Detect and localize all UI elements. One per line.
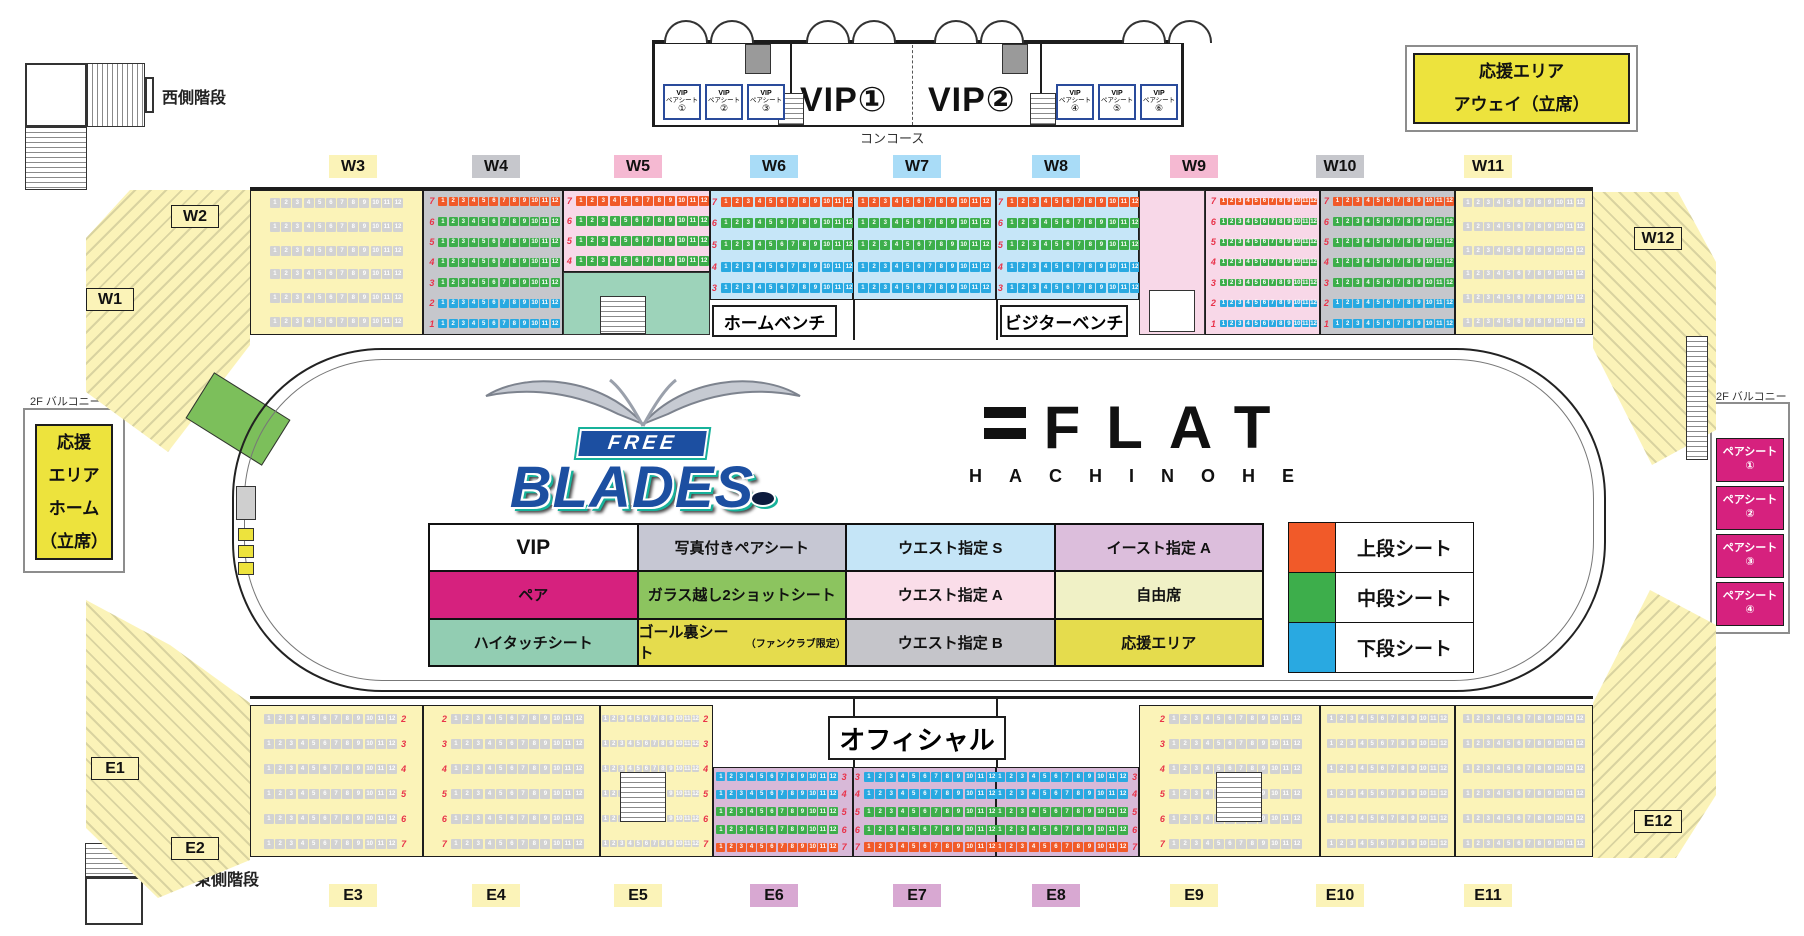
seat-block-e8: 1234567891011123123456789101112412345678… <box>996 767 1139 857</box>
door-arc-icon <box>806 20 850 43</box>
seat: 8 <box>659 740 666 747</box>
seat: 7 <box>1062 842 1072 852</box>
row-number: 3 <box>1158 739 1166 749</box>
seat: 4 <box>1029 772 1039 782</box>
seat: 9 <box>359 293 369 303</box>
seat: 4 <box>1203 839 1213 849</box>
row-number: 6 <box>1209 217 1217 227</box>
seat: 9 <box>810 240 820 250</box>
seat: 8 <box>788 807 797 816</box>
home-area-line1: 応援 <box>57 426 91 459</box>
seat-row: 3123456789101112 <box>1206 278 1319 288</box>
seat: 3 <box>880 262 890 272</box>
seat: 5 <box>1368 714 1377 723</box>
seat: 9 <box>520 217 529 226</box>
seat: 4 <box>627 765 634 772</box>
seat: 10 <box>1425 278 1434 287</box>
seat: 10 <box>1294 300 1301 307</box>
seat: 2 <box>449 217 458 226</box>
seat: 1 <box>1327 739 1336 748</box>
seat: 6 <box>489 278 498 287</box>
seat: 10 <box>822 197 832 207</box>
seat: 1 <box>1333 217 1342 226</box>
seat: 9 <box>359 198 369 208</box>
seat: 4 <box>747 843 756 852</box>
seat: 2 <box>587 236 597 246</box>
seat: 1 <box>270 246 280 256</box>
legend-cell-label: イースト指定 A <box>1107 537 1211 558</box>
seat: 7 <box>1394 217 1403 226</box>
seat: 4 <box>485 839 495 849</box>
row-number: 2 <box>702 714 710 724</box>
row-number: 2 <box>400 714 408 724</box>
seat: 9 <box>353 739 363 749</box>
seat-row: 1234567891011125 <box>997 807 1138 817</box>
seat: 4 <box>898 772 908 782</box>
seat: 11 <box>833 218 843 228</box>
seat: 3 <box>737 772 746 781</box>
seat: 2 <box>1228 279 1235 286</box>
seat: 2 <box>1474 739 1483 748</box>
seat: 3 <box>886 825 896 835</box>
seat: 10 <box>1419 789 1428 798</box>
seat: 3 <box>1191 714 1201 724</box>
seat: 7 <box>778 772 787 781</box>
door-arc-icon <box>852 20 896 43</box>
vip-pair-seat-box-1: VIP ペアシート ① <box>663 84 701 120</box>
seat-row: 3123456789101112 <box>854 772 995 782</box>
seat-row: 123456789101112 <box>854 218 995 228</box>
seat: 7 <box>1074 240 1084 250</box>
seat: 10 <box>1294 259 1301 266</box>
seat: 2 <box>875 842 885 852</box>
seat: 10 <box>1096 807 1106 817</box>
seat: 5 <box>479 217 488 226</box>
seat: 7 <box>651 840 658 847</box>
seat: 6 <box>767 807 776 816</box>
east-stairs-room <box>85 877 143 925</box>
seat: 6 <box>489 197 498 206</box>
seat: 6 <box>767 772 776 781</box>
seat: 7 <box>651 740 658 747</box>
seat: 1 <box>438 217 447 226</box>
seat: 2 <box>869 197 879 207</box>
seat: 9 <box>1545 294 1554 303</box>
seat: 4 <box>610 256 620 266</box>
seat-row: 3123456789101112 <box>424 739 599 749</box>
seat: 10 <box>1425 197 1434 206</box>
seat: 12 <box>829 790 838 799</box>
home-area-line4: （立席） <box>40 525 108 558</box>
seat: 3 <box>618 840 625 847</box>
seat-block-e6: 1234567891011123123456789101112412345678… <box>713 767 853 857</box>
seat: 5 <box>1374 197 1383 206</box>
seat: 2 <box>732 197 742 207</box>
seat: 9 <box>1414 278 1423 287</box>
row-number: 5 <box>840 807 848 817</box>
seat: 9 <box>1084 807 1094 817</box>
seat: 11 <box>1107 842 1117 852</box>
seat: 6 <box>632 216 642 226</box>
seat: 7 <box>1269 218 1276 225</box>
seat: 1 <box>1333 278 1342 287</box>
seat: 11 <box>540 217 549 226</box>
seat: 5 <box>479 278 488 287</box>
seat-row: 5123456789101112 <box>997 240 1138 250</box>
seat: 2 <box>1180 839 1190 849</box>
vip-pair-seat-box-3: VIP ペアシート ③ <box>747 84 785 120</box>
legend-cell: ゴール裏シート（ファンクラブ限定） <box>638 619 847 666</box>
seat: 6 <box>1514 839 1523 848</box>
seat: 8 <box>942 807 952 817</box>
seat: 11 <box>1429 739 1438 748</box>
seat: 2 <box>727 843 736 852</box>
seat: 2 <box>1343 319 1352 328</box>
tier-legend-row: 中段シート <box>1289 573 1473 623</box>
seat: 1 <box>438 278 447 287</box>
seat: 10 <box>808 807 817 816</box>
seat: 11 <box>688 216 698 226</box>
seat: 4 <box>469 238 478 247</box>
seat: 11 <box>1429 839 1438 848</box>
seat: 2 <box>1228 218 1235 225</box>
seat: 10 <box>1419 764 1428 773</box>
seat: 5 <box>1504 318 1513 327</box>
seat: 9 <box>1408 839 1417 848</box>
row-number: 3 <box>840 772 848 782</box>
seat: 5 <box>909 772 919 782</box>
seat: 7 <box>331 814 341 824</box>
seat: 7 <box>1236 714 1246 724</box>
seat: 6 <box>1378 789 1387 798</box>
seat: 10 <box>1555 764 1564 773</box>
seat: 7 <box>518 814 528 824</box>
seat: 8 <box>1535 714 1544 723</box>
seat: 6 <box>320 764 330 774</box>
seat: 7 <box>1525 270 1534 279</box>
team-logo-free-text: FREE <box>576 429 709 458</box>
seat: 7 <box>1525 714 1534 723</box>
seat: 11 <box>1302 259 1309 266</box>
home-bench-box: ホームベンチ <box>712 305 837 337</box>
row-number: 4 <box>1209 257 1217 267</box>
seat: 2 <box>610 715 617 722</box>
section-label-E7: E7 <box>893 884 941 907</box>
seat: 5 <box>1368 739 1377 748</box>
seat: 4 <box>1029 842 1039 852</box>
seat: 4 <box>627 840 634 847</box>
seat: 11 <box>1565 318 1574 327</box>
seat-row: 1234567891011123 <box>251 739 422 749</box>
seat: 10 <box>1555 198 1564 207</box>
seat: 5 <box>1368 764 1377 773</box>
seat: 8 <box>936 262 946 272</box>
seat: 4 <box>1029 825 1039 835</box>
seat: 3 <box>286 789 296 799</box>
seat: 10 <box>1108 197 1118 207</box>
seat: 1 <box>858 262 868 272</box>
seat: 4 <box>610 216 620 226</box>
seat: 7 <box>1388 764 1397 773</box>
seat: 8 <box>942 825 952 835</box>
seat: 6 <box>1225 714 1235 724</box>
seat: 5 <box>1214 839 1224 849</box>
seat: 10 <box>808 772 817 781</box>
seat: 3 <box>1484 789 1493 798</box>
seat-block-w11: 1234567891011121234567891011121234567891… <box>1455 190 1593 335</box>
seat: 7 <box>925 283 935 293</box>
seat: 3 <box>473 789 483 799</box>
home-area-line3: ホーム <box>49 492 100 525</box>
seat: 11 <box>382 222 392 232</box>
seat: 10 <box>1096 789 1106 799</box>
seat: 11 <box>1565 814 1574 823</box>
seat: 12 <box>699 256 709 266</box>
seat: 9 <box>1084 772 1094 782</box>
row-number: 3 <box>996 283 1004 293</box>
seat: 3 <box>1029 283 1039 293</box>
seat: 8 <box>1535 246 1544 255</box>
arena-seating-map: VIP① VIP② コンコース 西側階段 東側階段 応援エリア アウェイ（立席）… <box>0 0 1804 936</box>
seat-row: 7123456789101112 <box>424 839 599 849</box>
seat: 7 <box>1062 789 1072 799</box>
seat: 1 <box>438 319 447 328</box>
official-box: オフィシャル <box>828 716 1006 760</box>
seat: 2 <box>462 739 472 749</box>
seat: 4 <box>304 222 314 232</box>
seat: 7 <box>643 216 653 226</box>
seat: 1 <box>264 839 274 849</box>
seat: 6 <box>777 197 787 207</box>
seat: 4 <box>1494 789 1503 798</box>
seat: 12 <box>1439 789 1448 798</box>
seat: 10 <box>371 222 381 232</box>
row-number: 5 <box>428 237 436 247</box>
seat-row: 5123456789101112 <box>1321 237 1454 247</box>
seat: 11 <box>1565 789 1574 798</box>
seat: 8 <box>1073 807 1083 817</box>
seat: 2 <box>1343 278 1352 287</box>
seat: 8 <box>510 197 519 206</box>
seat: 6 <box>1514 198 1523 207</box>
seat: 9 <box>1408 739 1417 748</box>
seat: 9 <box>665 196 675 206</box>
seat: 7 <box>1388 739 1397 748</box>
row-number: 4 <box>702 764 710 774</box>
seat: 12 <box>692 765 699 772</box>
seat: 1 <box>1169 714 1179 724</box>
away-area-line2: アウェイ（立席） <box>1454 89 1590 121</box>
seat: 5 <box>1253 279 1260 286</box>
seat: 6 <box>767 843 776 852</box>
seat-block-e4: 2123456789101112312345678910111241234567… <box>423 705 600 857</box>
seat: 5 <box>1052 218 1062 228</box>
seat: 1 <box>716 807 725 816</box>
section-label-E11: E11 <box>1464 884 1512 907</box>
seat: 1 <box>264 764 274 774</box>
goal-box-1 <box>238 528 254 541</box>
seat: 4 <box>469 299 478 308</box>
seat: 2 <box>727 772 736 781</box>
row-number: 4 <box>440 764 448 774</box>
seat: 3 <box>1484 318 1493 327</box>
seat: 4 <box>1494 270 1503 279</box>
seat: 11 <box>1119 218 1129 228</box>
seat: 5 <box>479 319 488 328</box>
legend-cell-label: ゴール裏シート <box>639 621 743 663</box>
seat: 10 <box>552 789 562 799</box>
seat: 9 <box>947 240 957 250</box>
legend-cell-label: ウエスト指定 S <box>898 537 1002 558</box>
row-number: 5 <box>853 807 861 817</box>
seat: 9 <box>520 258 529 267</box>
seat: 8 <box>348 198 358 208</box>
seat: 3 <box>1347 814 1356 823</box>
seat: 2 <box>449 278 458 287</box>
seat: 7 <box>500 299 509 308</box>
seat: 3 <box>1484 814 1493 823</box>
vip-pair-num: ① <box>678 104 686 114</box>
seat: 12 <box>1445 319 1454 328</box>
row-number: 4 <box>996 262 1004 272</box>
seat-row: 1123456789101112 <box>424 319 562 329</box>
row-number: 4 <box>1158 764 1166 774</box>
pair-seat-box-3: ペアシート ③ <box>1716 534 1784 578</box>
seat: 2 <box>1228 239 1235 246</box>
seat: 11 <box>976 789 986 799</box>
seat: 1 <box>995 825 1005 835</box>
seat: 9 <box>1414 299 1423 308</box>
seat: 3 <box>1353 278 1362 287</box>
seat: 11 <box>1281 739 1291 749</box>
seat: 12 <box>1439 839 1448 848</box>
seat: 4 <box>1245 239 1252 246</box>
seat-row: 6123456789101112 <box>854 825 995 835</box>
seat: 11 <box>1565 839 1574 848</box>
seat: 1 <box>721 197 731 207</box>
seat: 9 <box>667 790 674 797</box>
seat: 3 <box>1191 839 1201 849</box>
seat: 8 <box>348 222 358 232</box>
seat: 3 <box>1017 807 1027 817</box>
seat: 12 <box>393 317 403 327</box>
seat: 7 <box>1236 839 1246 849</box>
seat: 10 <box>1425 217 1434 226</box>
seat: 10 <box>1108 283 1118 293</box>
seat-row: 6123456789101112 <box>997 218 1138 228</box>
seat: 3 <box>886 807 896 817</box>
seat: 9 <box>953 772 963 782</box>
seat-block-w3: 1234567891011121234567891011121234567891… <box>250 190 423 335</box>
seat: 3 <box>1484 198 1493 207</box>
seat: 6 <box>1051 825 1061 835</box>
seat: 12 <box>1439 814 1448 823</box>
seat: 4 <box>1203 789 1213 799</box>
seat: 8 <box>1247 839 1257 849</box>
seat: 4 <box>898 825 908 835</box>
seat: 5 <box>1504 246 1513 255</box>
seat-row: 123456789101112 <box>1321 714 1454 723</box>
seat: 2 <box>1337 839 1346 848</box>
team-logo-wings-icon <box>478 368 808 430</box>
seat: 11 <box>563 839 573 849</box>
seat: 9 <box>667 815 674 822</box>
seat: 2 <box>1474 789 1483 798</box>
seat: 5 <box>903 218 913 228</box>
seat: 9 <box>953 807 963 817</box>
seat: 1 <box>264 814 274 824</box>
seat: 4 <box>747 772 756 781</box>
row-number: 4 <box>428 257 436 267</box>
seat: 5 <box>309 739 319 749</box>
seat: 3 <box>286 814 296 824</box>
west-stairs-label: 西側階段 <box>162 84 226 108</box>
seat: 7 <box>500 258 509 267</box>
seat: 2 <box>449 258 458 267</box>
seat-row: 123456789101112 <box>1456 814 1592 823</box>
seat: 1 <box>721 218 731 228</box>
seat: 10 <box>1419 739 1428 748</box>
seat: 7 <box>651 765 658 772</box>
row-number: 5 <box>1209 237 1217 247</box>
seat: 5 <box>1052 240 1062 250</box>
seat: 5 <box>1504 789 1513 798</box>
seat-row: 123456789101112 <box>854 262 995 272</box>
seat: 10 <box>959 283 969 293</box>
seat: 1 <box>1463 222 1472 231</box>
seat: 2 <box>875 789 885 799</box>
seat: 4 <box>1494 739 1503 748</box>
seat: 1 <box>451 839 461 849</box>
seat: 8 <box>1535 294 1544 303</box>
seat: 7 <box>331 764 341 774</box>
seat: 3 <box>1236 239 1243 246</box>
seat: 1 <box>716 825 725 834</box>
seat: 3 <box>292 293 302 303</box>
section-label-E9: E9 <box>1170 884 1218 907</box>
seat: 8 <box>1398 739 1407 748</box>
seat: 1 <box>602 715 609 722</box>
seat: 12 <box>551 258 560 267</box>
seat: 12 <box>1445 299 1454 308</box>
seat: 2 <box>1180 739 1190 749</box>
seat: 9 <box>798 807 807 816</box>
seat: 4 <box>485 789 495 799</box>
seat-block-e7: 3123456789101112412345678910111251234567… <box>853 767 996 857</box>
seat: 10 <box>1270 814 1280 824</box>
seat: 10 <box>365 739 375 749</box>
seat-row: 123456789101112 <box>1456 739 1592 748</box>
seat: 9 <box>1285 320 1292 327</box>
row-number: 5 <box>1322 237 1330 247</box>
seat: 11 <box>1119 197 1129 207</box>
seat: 7 <box>1269 279 1276 286</box>
seat: 11 <box>684 740 691 747</box>
seat: 2 <box>869 240 879 250</box>
seat: 3 <box>1029 197 1039 207</box>
seat: 1 <box>858 283 868 293</box>
seat: 7 <box>931 842 941 852</box>
seat: 9 <box>1545 222 1554 231</box>
seat: 12 <box>1576 789 1585 798</box>
seat: 2 <box>449 319 458 328</box>
seat-row: 1234567891011124 <box>251 764 422 774</box>
seat: 5 <box>1368 814 1377 823</box>
seat: 11 <box>818 843 827 852</box>
seat: 9 <box>810 197 820 207</box>
seat: 6 <box>767 790 776 799</box>
seat: 6 <box>507 839 517 849</box>
